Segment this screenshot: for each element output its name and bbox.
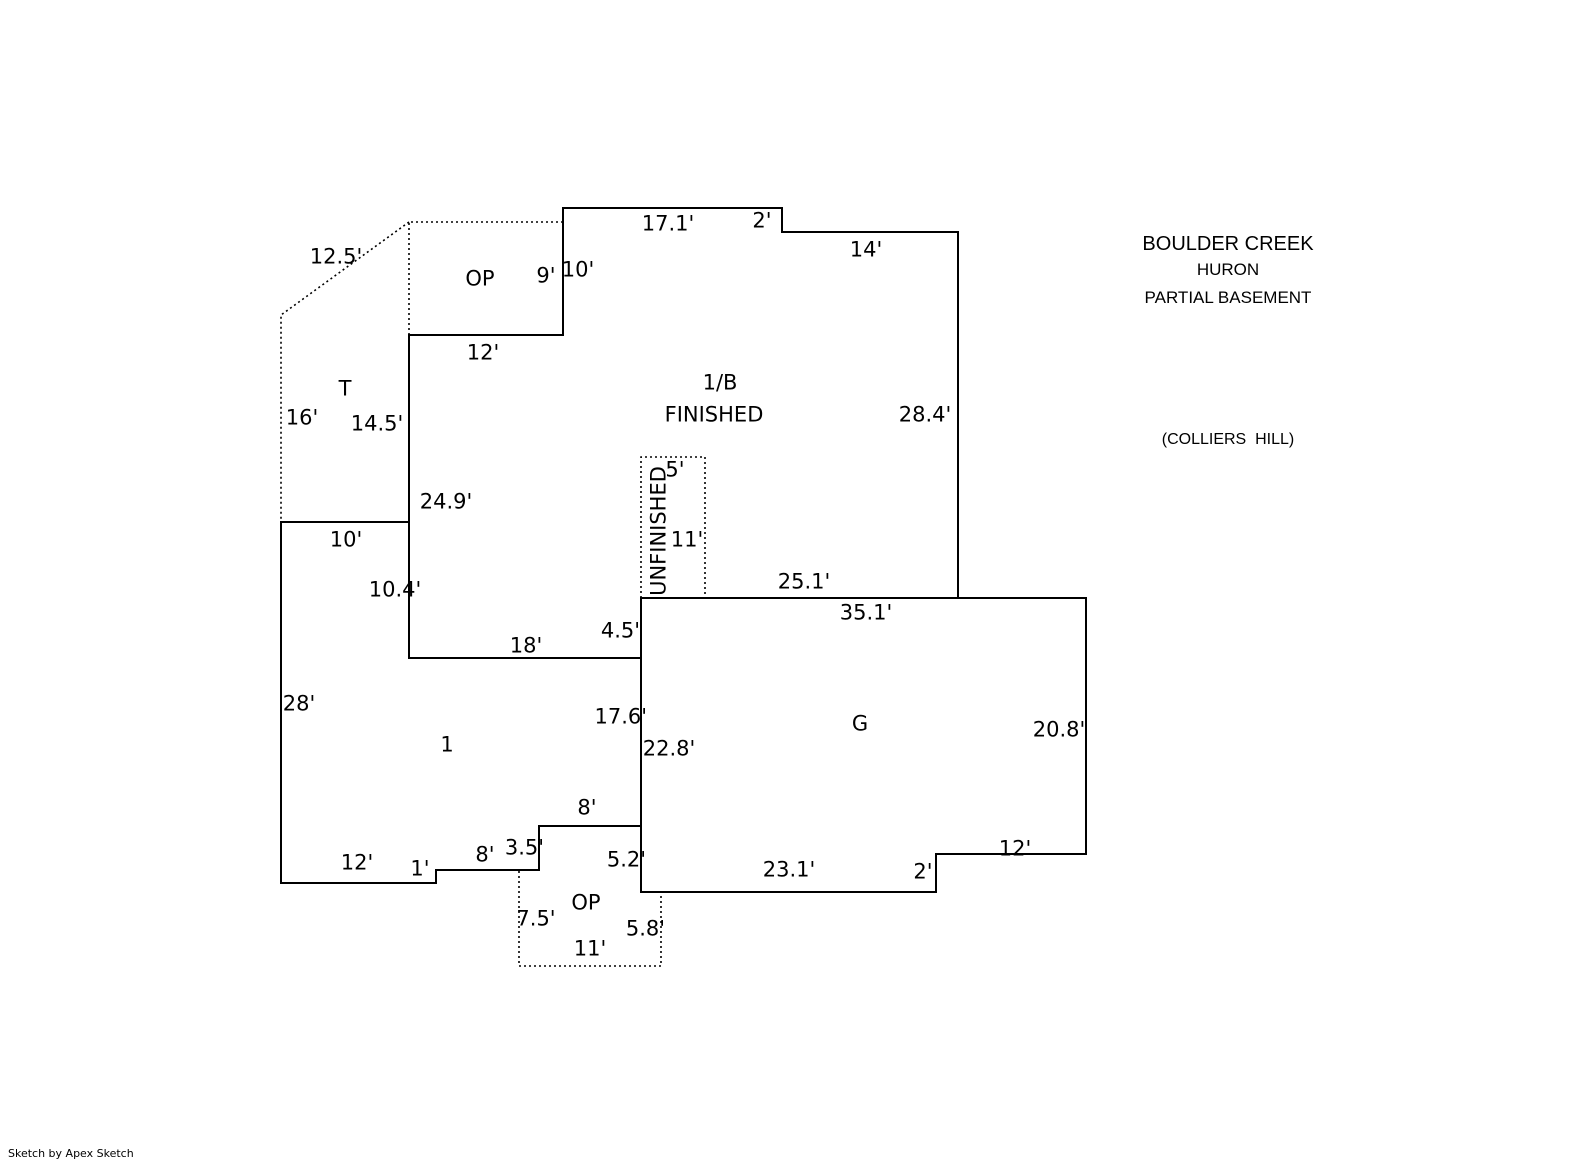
dimension-label: 9' [536,266,555,287]
dimension-label: 16' [286,408,319,429]
area-label: OP [571,893,600,914]
dimension-label: 14.5' [351,414,404,435]
sketch-page: 12.5'9'10'17.1'2'14'12'16'14.5'28.4'24.9… [0,0,1585,1163]
area-label: 1/B [703,373,738,394]
plan-community-name: (COLLIERS HILL) [1040,431,1416,449]
dimension-label: 25.1' [778,572,831,593]
area-label: UNFINISHED [649,466,670,596]
dimension-label: 5.8' [626,919,665,940]
plan-basement-type: PARTIAL BASEMENT [1040,289,1416,308]
area-label: G [852,714,868,735]
dimension-label: 12.5' [310,247,363,268]
dimension-label: 35.1' [840,603,893,624]
dimension-label: 17.6' [594,707,647,728]
area-label: FINISHED [665,405,764,426]
dimension-label: 18' [510,636,543,657]
dimension-label: 11' [574,939,607,960]
dimension-label: 12' [999,839,1032,860]
dimension-label: 3.5' [505,838,544,859]
dimension-label: 2' [752,211,771,232]
dimension-label: 17.1' [642,214,695,235]
dimension-label: 1' [410,859,429,880]
dimension-label: 7.5' [516,909,555,930]
dimension-label: 14' [850,240,883,261]
dimension-label: 2' [913,862,932,883]
area-label: 1 [440,735,453,756]
apex-sketch-watermark: Sketch by Apex Sketch [8,1148,134,1160]
area-label: OP [465,269,494,290]
dimension-label: 12' [467,343,500,364]
dimension-label: 24.9' [420,492,473,513]
dimension-label: 11' [671,530,704,551]
dimension-label: 10.4' [369,580,422,601]
dimension-label: 20.8' [1033,720,1086,741]
dimension-label: 28' [283,694,316,715]
dimension-label: 28.4' [899,405,952,426]
dimension-label: 8' [577,798,596,819]
dimension-label: 22.8' [643,739,696,760]
dimension-label: 4.5' [601,621,640,642]
dimension-label: 8' [475,845,494,866]
first-floor-outline [281,522,641,883]
area-label: T [339,379,352,400]
dimension-label: 10' [562,260,595,281]
dimension-label: 23.1' [763,860,816,881]
dimension-label: 5.2' [607,850,646,871]
plan-elevation-name: HURON [1040,261,1416,280]
dimension-label: 12' [341,853,374,874]
plan-model-name: BOULDER CREEK [1040,233,1416,255]
dimension-label: 10' [330,530,363,551]
